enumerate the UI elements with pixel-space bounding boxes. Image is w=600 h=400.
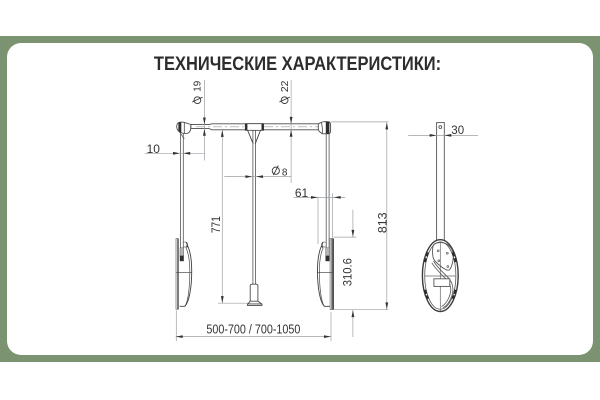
- svg-text:310.6: 310.6: [342, 258, 354, 286]
- svg-text:19: 19: [193, 80, 204, 91]
- svg-text:500-700 / 700-1050: 500-700 / 700-1050: [206, 323, 300, 337]
- svg-text:61: 61: [295, 186, 309, 200]
- svg-text:813: 813: [377, 212, 389, 233]
- svg-text:771: 771: [211, 216, 223, 233]
- svg-text:30: 30: [451, 125, 464, 137]
- svg-text:10: 10: [147, 142, 161, 156]
- svg-text:22: 22: [280, 80, 291, 92]
- svg-text:8: 8: [282, 168, 288, 179]
